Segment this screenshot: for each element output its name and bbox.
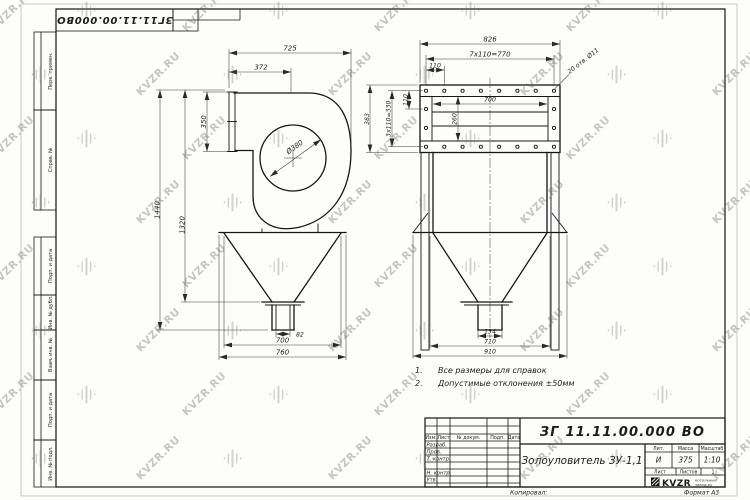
dim-left-impeller-dia: Ø380 [284,138,305,156]
bolt-hole [461,145,464,148]
bolt-hole [534,145,537,148]
margin-label-inv-podl: Инв. № подл. [48,446,54,481]
bolt-hole [516,89,519,92]
sheet-frame [21,4,737,496]
dim-right-inner-width: 700 [484,97,496,104]
kvzr-logo-text: KVZR [662,479,691,489]
margin-label-vzam-inv: Взам. инв. № [48,337,54,372]
tb-col-podp: Подп. [490,435,505,441]
bolt-hole [516,145,519,148]
tb-sheets-label: Листов [680,469,698,475]
drawing-svg: ЗГ11.11.00.000ВО Перв. примен. Справ. № … [0,0,750,500]
tb-col-doc: № докум. [457,435,481,441]
bolt-hole [498,145,501,148]
tb-col-list: Лист [437,435,449,441]
bolt-hole [552,107,555,110]
note-1-text: Все размеры для справок [438,366,547,375]
bolt-hole [424,89,427,92]
tb-scale-label: Масштаб [701,446,724,452]
dim-left-flange-height: 350 [200,115,208,129]
tb-lit-value: И [656,456,662,465]
title-block: Изм. Лист № докум. Подп. Дата Разраб. Пр… [425,418,725,497]
bolt-hole [443,145,446,148]
tb-scale-value: 1:10 [704,456,721,465]
dim-right-outlet-width: 134 [484,329,496,336]
dim-right-base-width: 910 [484,349,496,356]
dim-right-bolt-pitch-h: 7x110=770 [469,51,511,59]
margin-label-sprav-n: Справ. № [48,147,54,172]
tb-row-utv: Утв. [427,478,438,484]
dim-left-inlet-offset: 372 [254,64,268,72]
dim-right-overall-width: 826 [483,36,497,44]
tb-format-label: Формат А3 [684,490,719,497]
dim-right-inner-height: 260 [452,113,459,125]
tb-row-nkontr: Н. контр. [427,471,452,477]
margin-label-podp-data-1: Подп. и дата [48,249,54,283]
margin-label-perv-primen: Перв. примен. [48,52,54,90]
tb-col-izm: Изм. [425,435,436,441]
corner-stamp-number: ЗГ11.11.00.000ВО [56,14,172,25]
dim-right-bolt-pitch-first: 110 [429,63,441,70]
dim-left-body-height: 1320 [179,216,187,234]
dim-left-hopper-flange-width: 760 [276,349,290,357]
corner-stamp: ЗГ11.11.00.000ВО [56,9,240,31]
bolt-hole [534,89,537,92]
note-1-number: 1. [415,366,423,375]
margin-label-inv-dubl: Инв. № дубл. [48,295,54,330]
bolt-hole [479,145,482,148]
tb-copied-label: Копировал: [510,490,547,497]
right-view-dimensions: 826 7x110=770 110 20 отв. Ø11 383 3x110=… [364,36,600,359]
left-view: 725 372 350 Ø380 1440 1320 82 70 [154,45,352,361]
tb-row-razrab: Разраб. [427,443,447,449]
dim-left-hopper-width: 700 [276,337,290,345]
note-2-number: 2. [415,379,423,388]
tb-row-tkontr: Т. контр. [427,457,451,463]
dim-right-holes-note: 20 отв. Ø11 [566,46,601,75]
margin-labels: Перв. примен. Справ. № Подп. и дата Инв.… [48,52,54,481]
dim-left-overall-height: 1440 [154,201,162,219]
drawing-sheet: ЗГ11.11.00.000ВО Перв. примен. Справ. № … [0,0,750,500]
bolt-hole [461,89,464,92]
right-view: 826 7x110=770 110 20 отв. Ø11 383 3x110=… [364,36,600,359]
bolt-hole [443,89,446,92]
tb-lit-label: Лит. [653,446,664,452]
bolt-hole [424,107,427,110]
notes: 1. Все размеры для справок 2. Допустимые… [415,366,574,388]
dim-right-bolt-pitch-v-first: 110 [403,94,410,106]
bolt-hole [424,126,427,129]
margin-label-podp-data-2: Подп. и дата [48,393,54,427]
tb-col-data: Дата [508,435,520,441]
bolt-hole [552,145,555,148]
tb-mass-value: 375 [678,456,693,465]
dim-right-bolt-pitch-v: 3x110=330 [386,100,393,136]
dim-left-outlet-pipe: 82 [296,332,304,339]
left-view-contour [219,92,351,330]
left-view-dimensions: 725 372 350 Ø380 1440 1320 82 70 [154,45,352,361]
bolt-hole [552,89,555,92]
note-2-text: Допустимые отклонения ±50мм [437,379,574,388]
bolt-hole [479,89,482,92]
bolt-hole [552,126,555,129]
dim-right-flange-height: 383 [364,113,371,125]
tb-mass-label: Масса [678,446,693,452]
tb-row-prov: Пров. [427,450,442,456]
tb-sheets-value: 1 [711,470,714,476]
bolt-hole [498,89,501,92]
dim-right-hopper-width: 710 [484,339,496,346]
tb-doc-number: ЗГ 11.11.00.000 ВО [540,425,705,440]
kvzr-tagline-bottom: завод.ру [695,482,713,487]
bolt-hole [424,145,427,148]
tb-sheet-label: Лист [654,469,666,475]
tb-part-name: Золоуловитель ЗУ-1,1 [521,455,642,467]
dim-left-overall-width: 725 [283,45,297,53]
